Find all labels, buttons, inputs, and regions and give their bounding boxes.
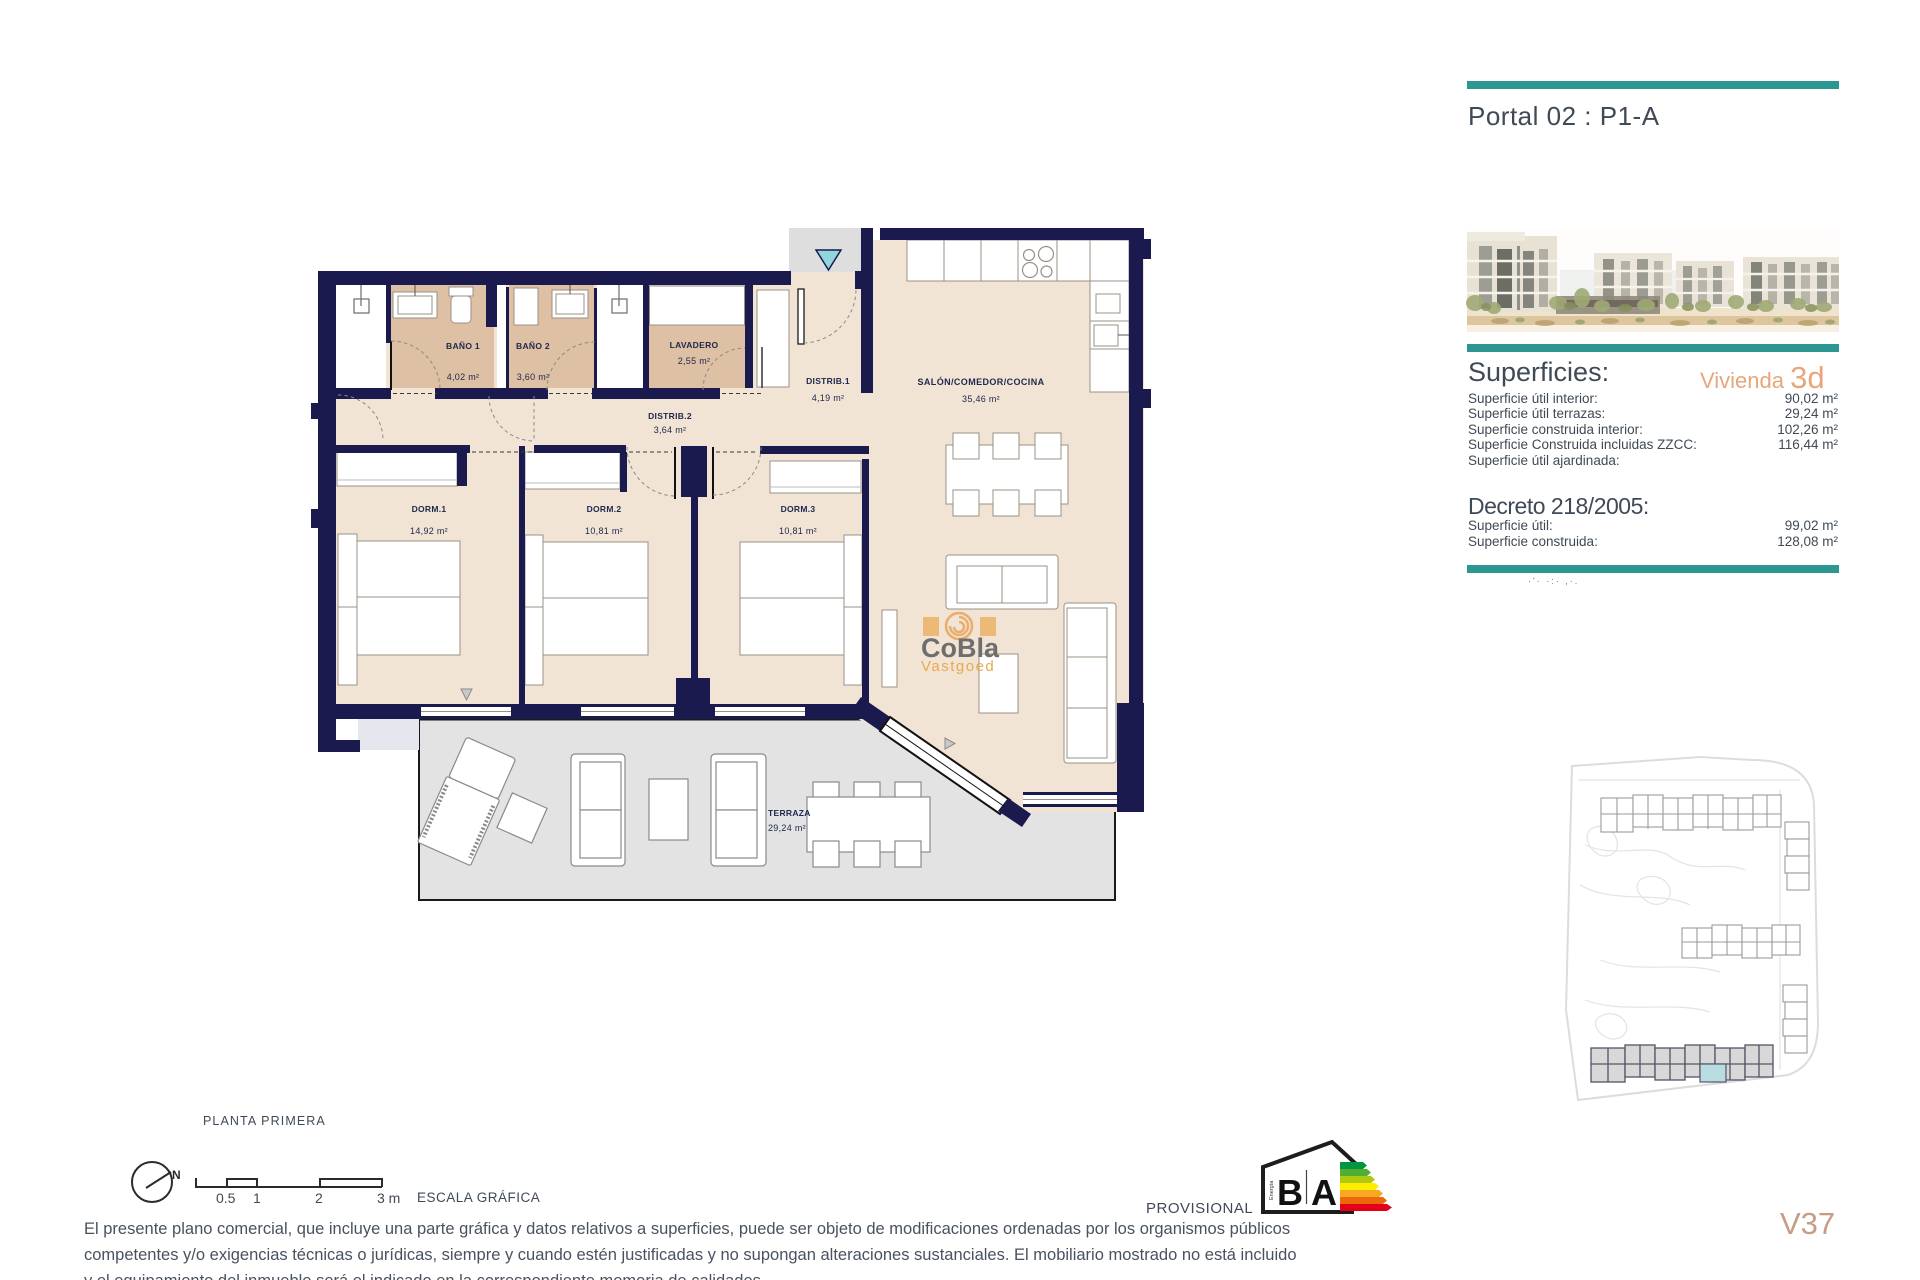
svg-text:TERRAZA: TERRAZA [768,808,811,818]
svg-text:4,19 m²: 4,19 m² [812,393,845,403]
svg-text:Vastgoed: Vastgoed [921,658,995,675]
svg-text:DISTRIB.1: DISTRIB.1 [806,376,850,386]
svg-text:4,02 m²: 4,02 m² [447,372,480,382]
svg-text:DORM.2: DORM.2 [587,504,622,514]
svg-text:2,55 m²: 2,55 m² [678,356,711,366]
svg-text:10,81 m²: 10,81 m² [585,526,623,536]
svg-text:LAVADERO: LAVADERO [670,340,719,350]
svg-text:3,60 m²: 3,60 m² [517,372,550,382]
svg-text:35,46 m²: 35,46 m² [962,394,1000,404]
svg-text:10,81 m²: 10,81 m² [779,526,817,536]
svg-text:29,24 m²: 29,24 m² [768,823,806,833]
svg-text:DORM.3: DORM.3 [781,504,816,514]
svg-text:Energía: Energía [1269,1180,1275,1200]
svg-text:3,64 m²: 3,64 m² [654,425,687,435]
svg-text:14,92 m²: 14,92 m² [410,526,448,536]
svg-text:DISTRIB.2: DISTRIB.2 [648,411,692,421]
svg-text:A: A [1311,1172,1337,1213]
svg-text:BAÑO 2: BAÑO 2 [516,341,550,351]
svg-text:BAÑO 1: BAÑO 1 [446,341,480,351]
svg-text:N: N [172,1168,181,1182]
svg-text:B: B [1277,1172,1303,1213]
svg-text:SALÓN/COMEDOR/COCINA: SALÓN/COMEDOR/COCINA [918,376,1045,387]
svg-text:DORM.1: DORM.1 [412,504,447,514]
